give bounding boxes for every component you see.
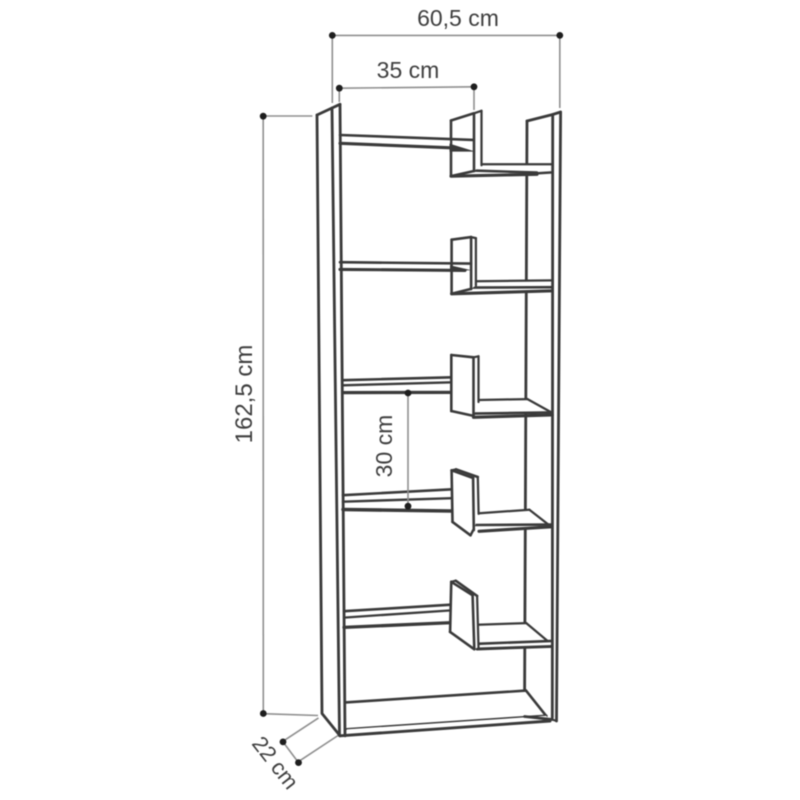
svg-text:162,5 cm: 162,5 cm — [231, 345, 258, 444]
svg-text:60,5 cm: 60,5 cm — [417, 5, 499, 31]
svg-text:35 cm: 35 cm — [377, 57, 440, 83]
svg-text:30 cm: 30 cm — [371, 415, 397, 478]
